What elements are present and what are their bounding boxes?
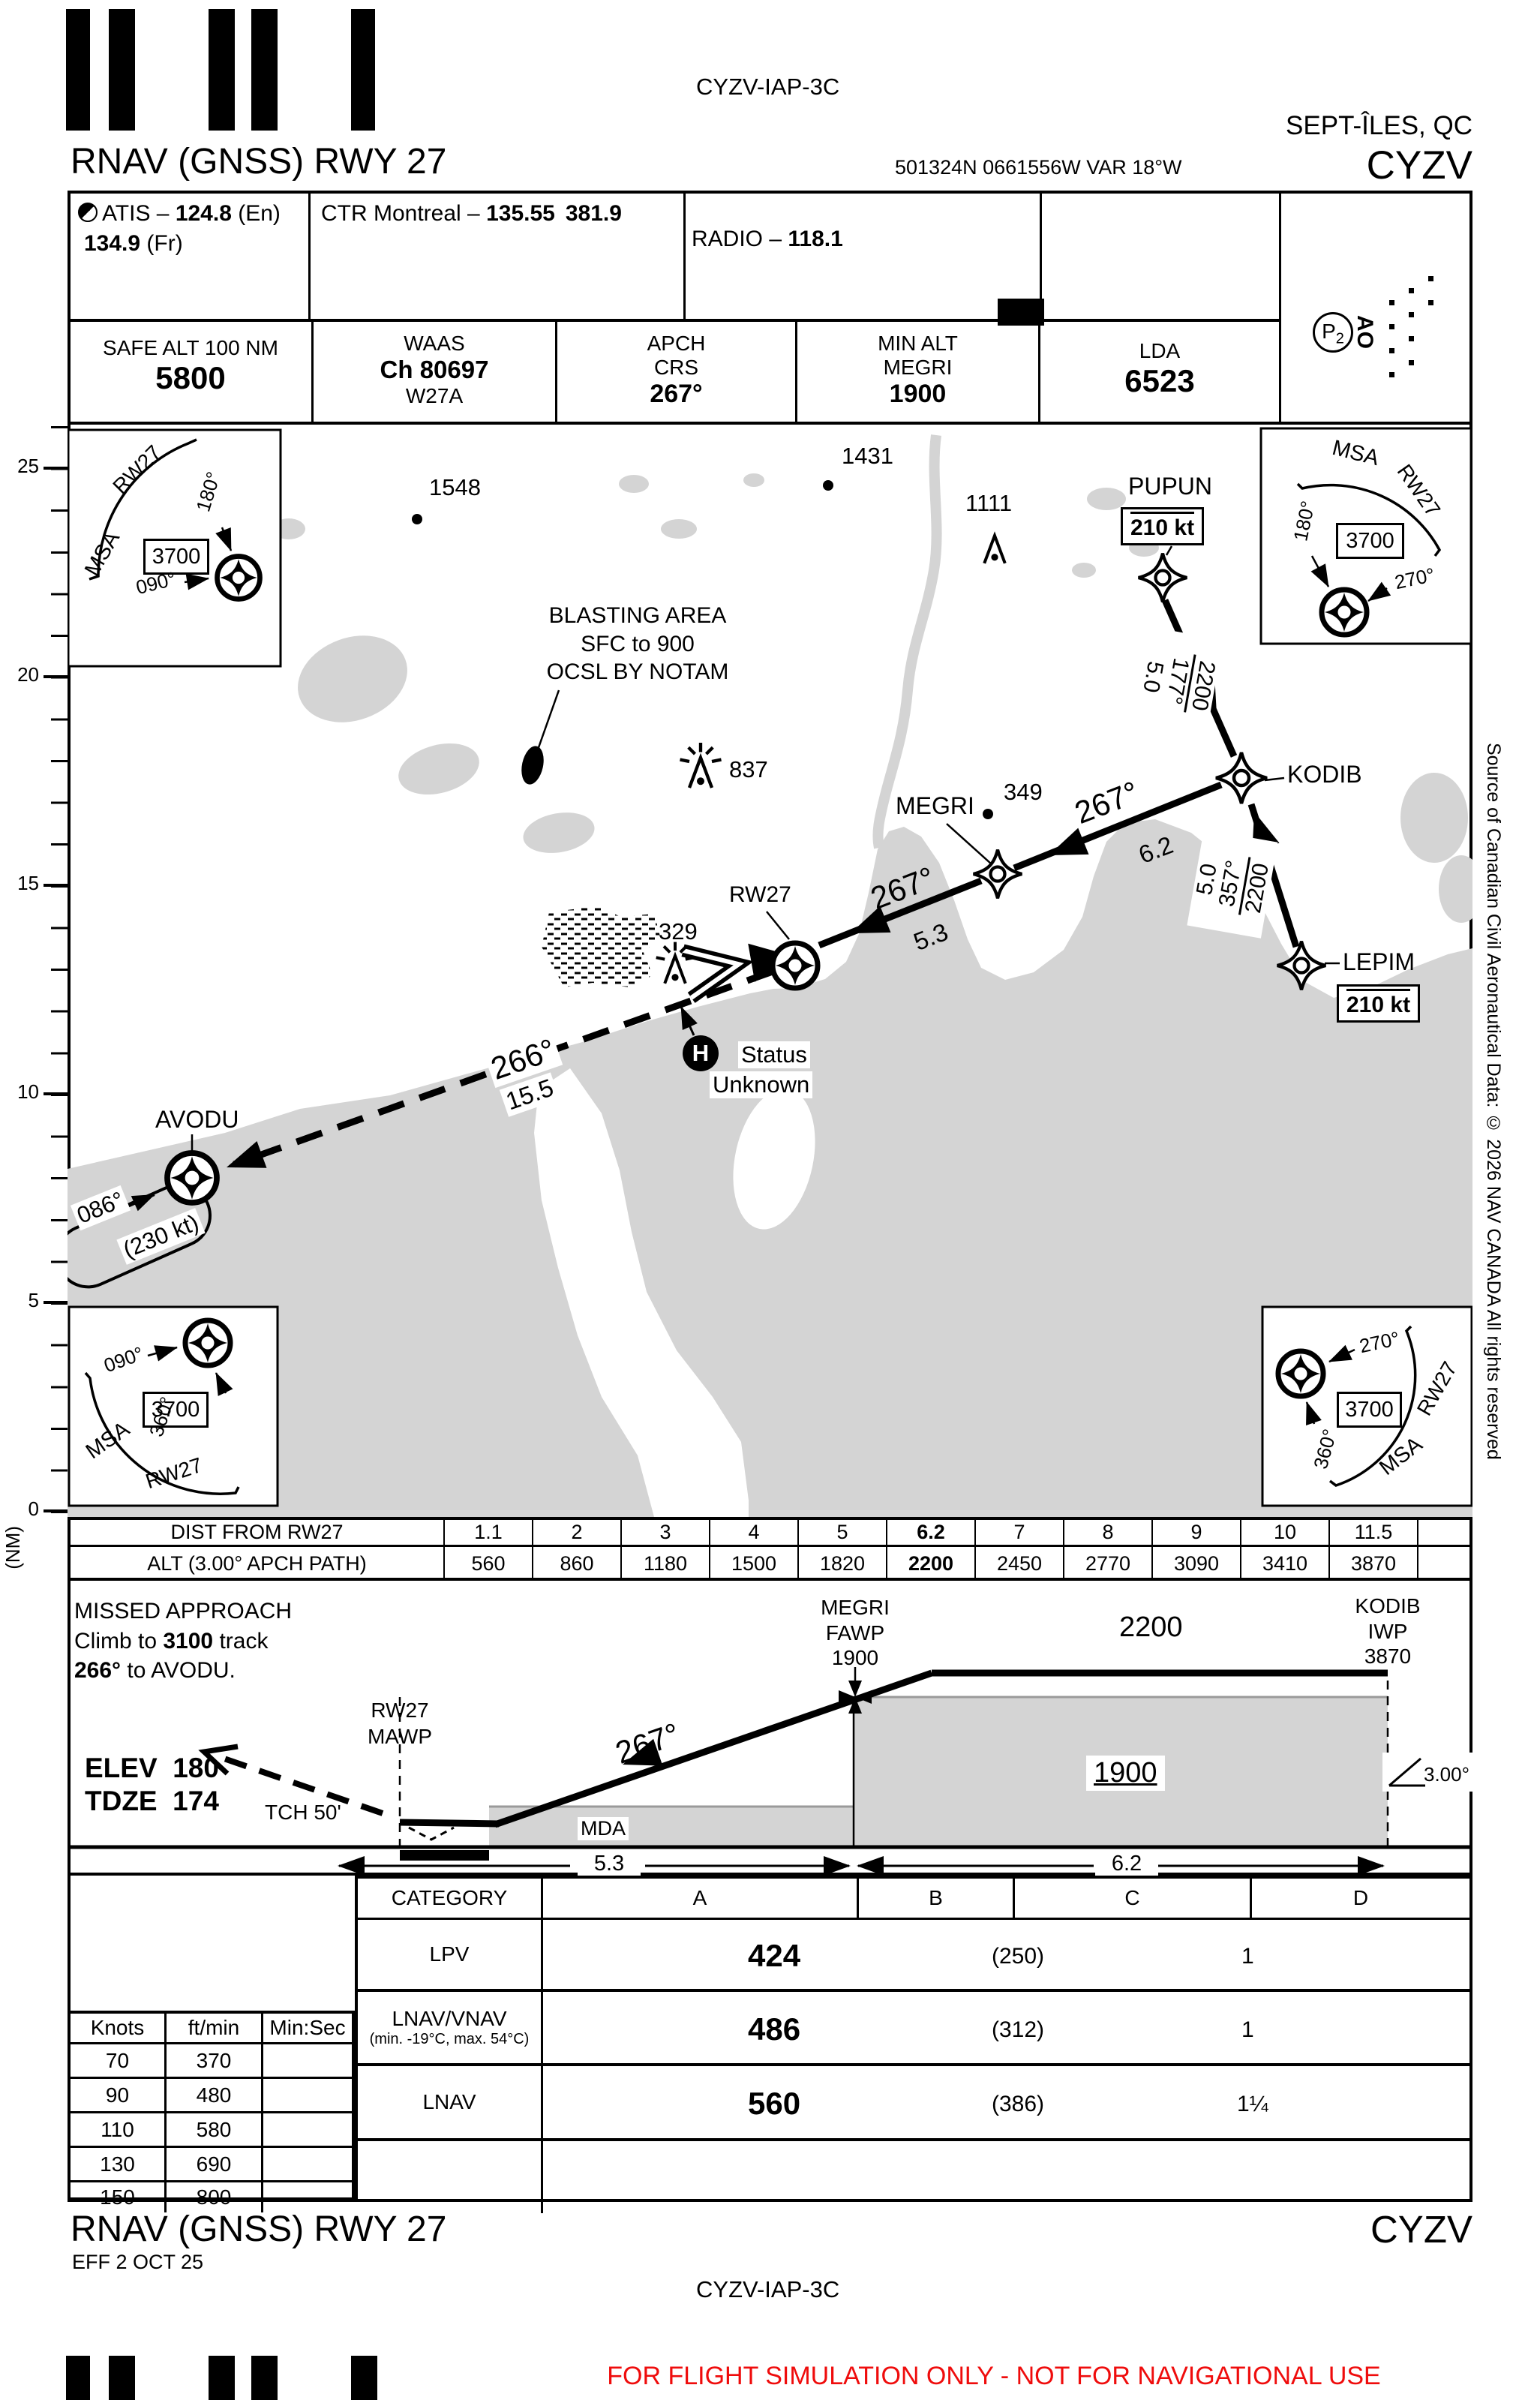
airport-coordinates: 501324N 0661556W VAR 18°W <box>895 156 1182 179</box>
msa-tr-altitude: 3700 <box>1336 523 1404 559</box>
speed-restriction-pupun: 210 kt <box>1121 507 1204 545</box>
iwp-label: KODIBIWP3870 <box>1343 1593 1433 1669</box>
fix-label-megri: MEGRI <box>896 792 974 820</box>
fix-kodib <box>1216 752 1267 804</box>
alt-row-label: ALT (3.00° APCH PATH) <box>71 1547 443 1580</box>
city-name: SEPT-ÎLES, QC <box>1125 111 1472 141</box>
lake <box>1072 563 1096 578</box>
fix-label-kodib: KODIB <box>1287 761 1362 788</box>
min-alt-box: MIN ALT MEGRI 1900 <box>799 332 1037 409</box>
tdze: TDZE 174 <box>85 1786 219 1817</box>
fix-label-rw27: RW27 <box>729 882 791 908</box>
nm-scale-5: 5 <box>11 1289 39 1312</box>
footer-icao: CYZV <box>1200 2207 1472 2251</box>
safe-alt-box: SAFE ALT 100 NM 5800 <box>71 336 310 396</box>
fix-pupun <box>1139 554 1187 602</box>
msa-fix-bl <box>185 1320 230 1365</box>
msa-fix-br <box>1278 1351 1323 1396</box>
nm-scale-10: 10 <box>11 1080 39 1104</box>
plan-view-map <box>68 425 1472 1517</box>
msa-fix-tl <box>218 557 260 599</box>
heliport-status1: Status <box>738 1041 810 1068</box>
minima-row-empty <box>358 2138 1469 2213</box>
fix-label-pupun: PUPUN <box>1128 473 1212 500</box>
speed-table: Knots ft/min Min:Sec 70 370 90 480 110 5… <box>68 2011 355 2200</box>
heliport-status2: Unknown <box>710 1071 812 1098</box>
dist-alt-table: DIST FROM RW27 1.1 2 3 4 5 6.2 7 8 9 10 … <box>68 1517 1472 1581</box>
radio-frequency: RADIO – 118.1 <box>692 227 843 252</box>
print-bar <box>251 9 278 131</box>
nm-scale-minor-ticks <box>51 426 68 1513</box>
mda-label: MDA <box>578 1817 629 1840</box>
coastal-patch <box>1439 855 1472 923</box>
print-bar <box>109 9 135 131</box>
lake <box>743 473 764 487</box>
atis-line2: 134.9 (Fr) <box>84 231 183 257</box>
fix-megri <box>974 850 1022 899</box>
obstacle-837 <box>680 743 722 788</box>
print-bar <box>66 2356 90 2400</box>
waas-box: WAAS Ch 80697 W27A <box>315 332 554 408</box>
obstacle-1111 <box>984 536 1005 563</box>
airport-elevation: ELEV 180 <box>85 1753 219 1784</box>
atis-icon <box>78 203 98 222</box>
lda-box: LDA 6523 <box>1042 339 1277 399</box>
mf-tag <box>998 299 1044 326</box>
spot-elev-329: 329 <box>659 918 698 945</box>
fix-label-avodu: AVODU <box>155 1106 239 1134</box>
approach-chart: CYZV-IAP-3C SEPT-ÎLES, QC RNAV (GNSS) RW… <box>0 0 1540 2400</box>
msa-fix-tr <box>1322 590 1367 635</box>
airport-icao: CYZV <box>1200 143 1472 188</box>
spot-dot-1431 <box>823 480 833 491</box>
blasting-leader <box>537 690 559 752</box>
coastal-patch <box>1400 773 1468 863</box>
speed-restriction-lepim: 210 kt <box>1337 984 1420 1023</box>
nm-scale-25: 25 <box>11 455 39 478</box>
dist-row-label: DIST FROM RW27 <box>71 1520 443 1545</box>
segment-dist-1: 5.3 <box>578 1852 641 1876</box>
lake <box>286 621 420 737</box>
nm-scale-15: 15 <box>11 872 39 895</box>
chart-code-bottom: CYZV-IAP-3C <box>696 2276 839 2303</box>
minima-row-lpv: LPV 424 (250) 1 <box>358 1920 1469 1989</box>
fix-rw27-mawp <box>773 943 818 988</box>
print-bar <box>351 2356 377 2400</box>
minima-table: CATEGORY A B C D LPV 424 (250) 1 LNAV/VN… <box>355 1876 1472 2202</box>
print-bar <box>209 2356 235 2400</box>
heliport-symbol: H <box>683 1035 719 1071</box>
lake <box>619 475 649 493</box>
apch-crs-box: APCH CRS 267° <box>559 332 794 409</box>
fix-avodu <box>167 1153 217 1203</box>
nm-scale-20: 20 <box>11 663 39 686</box>
fawp-label: MEGRIFAWP1900 <box>810 1595 900 1671</box>
source-note: Source of Canadian Civil Aeronautical Da… <box>1482 743 1504 1460</box>
simulation-warning: FOR FLIGHT SIMULATION ONLY - NOT FOR NAV… <box>559 2362 1429 2391</box>
glidepath-angle: 3.00° <box>1424 1763 1469 1786</box>
blasting-hatch-area <box>542 906 660 987</box>
river <box>878 435 936 848</box>
print-bar <box>66 9 90 131</box>
chart-code-top: CYZV-IAP-3C <box>696 74 839 101</box>
minima-row-lnav: LNAV 560 (386) 1¼ <box>358 2063 1469 2138</box>
tch: TCH 50' <box>265 1801 341 1825</box>
segment-altitude: 2200 <box>1119 1612 1183 1644</box>
print-bar <box>351 9 375 131</box>
msa-br-altitude: 3700 <box>1337 1392 1402 1428</box>
segment-dist-2: 6.2 <box>1095 1852 1158 1876</box>
spot-dot-1548 <box>412 514 422 524</box>
atis-line1: ATIS – 124.8 (En) <box>78 201 281 227</box>
spot-elev-1111: 1111 <box>965 490 1012 517</box>
lake <box>661 519 697 539</box>
effective-date: EFF 2 OCT 25 <box>72 2251 203 2274</box>
spot-elev-1431: 1431 <box>842 443 893 470</box>
fix-label-lepim: LEPIM <box>1343 948 1415 976</box>
spot-dot-349 <box>983 809 993 819</box>
footer-title: RNAV (GNSS) RWY 27 <box>71 2209 446 2250</box>
ao-label-holder: AO <box>1352 315 1377 349</box>
minima-row-lnav-vnav: LNAV/VNAV(min. -19°C, max. 54°C) 486 (31… <box>358 1989 1469 2063</box>
nm-scale-unit: (NM) <box>2 1526 25 1569</box>
spot-elev-837: 837 <box>729 756 768 783</box>
print-bar <box>251 2356 278 2400</box>
spot-elev-349: 349 <box>1004 779 1043 806</box>
print-bar <box>209 9 235 131</box>
nm-scale-0: 0 <box>11 1497 39 1521</box>
mawp-label: RW27MAWP <box>355 1697 445 1750</box>
minima-header-category: CATEGORY <box>358 1879 541 1918</box>
print-bar <box>109 2356 135 2400</box>
spot-elev-1548: 1548 <box>429 474 481 501</box>
missed-approach-text: MISSED APPROACH Climb to 3100 track 266°… <box>74 1596 292 1686</box>
mda-altitude-box: 1900 <box>1086 1756 1165 1791</box>
page-title: RNAV (GNSS) RWY 27 <box>71 141 446 182</box>
lake <box>520 807 598 858</box>
blasting-dot <box>518 744 547 787</box>
lake <box>393 735 485 803</box>
blasting-note: BLASTING AREASFC to 900OCSL BY NOTAM <box>525 602 750 686</box>
ctr-frequency: CTR Montreal – 135.55381.9 <box>321 201 622 227</box>
p2-symbol: P2 <box>1313 312 1353 353</box>
